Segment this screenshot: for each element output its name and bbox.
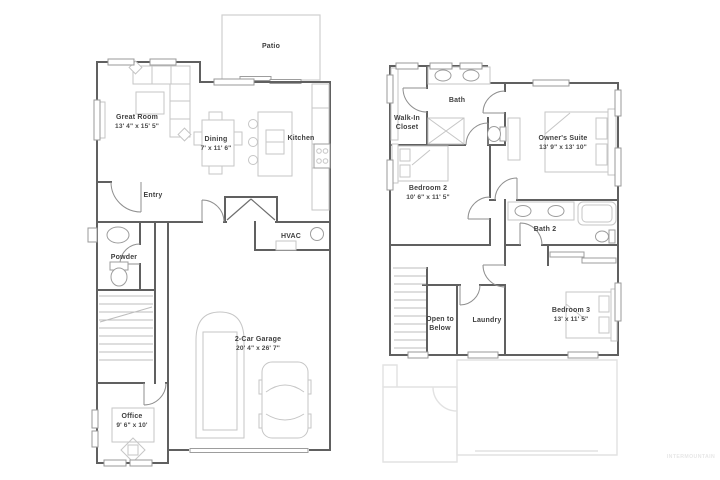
kitchen-island: [258, 112, 292, 176]
floor-plan-image: Patio: [0, 0, 720, 480]
water-heater: [311, 228, 324, 241]
open-to-below-label-line2: Below: [429, 325, 451, 332]
sofa: [170, 84, 190, 137]
bar-stool: [249, 120, 258, 129]
sink: [515, 206, 531, 217]
dining-chair: [209, 112, 222, 120]
patio-label: Patio: [262, 43, 280, 50]
closet-slider: [550, 252, 584, 257]
closet-walls: [225, 197, 277, 222]
bedroom3-door: [483, 265, 505, 287]
window: [615, 283, 621, 321]
window: [92, 410, 98, 428]
bath-label: Bath: [449, 97, 465, 104]
first-floor-plan: Patio: [88, 15, 330, 466]
window: [150, 59, 176, 65]
pillow: [596, 118, 607, 139]
walk-in-closet-label-line2: Closet: [396, 124, 419, 131]
toilet-room-door: [483, 91, 505, 113]
dresser: [508, 118, 520, 160]
window: [430, 63, 452, 69]
bedroom3-furniture: [550, 252, 617, 341]
window: [468, 352, 498, 358]
sink: [435, 70, 451, 81]
window: [568, 352, 598, 358]
office-label: Office: [121, 413, 142, 420]
ghost-door-arc: [433, 387, 457, 411]
toilet-bowl: [488, 127, 501, 142]
garage-dims: 20' 4" x 26' 7": [236, 345, 280, 352]
owners-suite-dims: 13' 9" x 13' 10": [539, 144, 587, 151]
garage-vehicles: [196, 312, 311, 438]
pillow: [599, 317, 609, 333]
bedroom2-label: Bedroom 2: [409, 185, 447, 192]
pillow: [599, 296, 609, 312]
bath-door: [466, 123, 488, 145]
bedroom2-furniture: [392, 144, 448, 183]
window: [387, 75, 393, 103]
dining-chair: [234, 132, 242, 145]
powder-sink: [107, 227, 129, 243]
dining-label: Dining: [205, 136, 228, 143]
toilet-bowl: [596, 231, 609, 242]
window: [615, 90, 621, 116]
dining-chair: [194, 132, 202, 145]
toilet-bowl: [111, 268, 127, 286]
staircase-floor2: [393, 268, 427, 348]
office-chair: [128, 445, 138, 455]
bar-stool: [249, 156, 258, 165]
vehicle-outline: [203, 332, 237, 430]
front-door: [111, 182, 141, 212]
window: [460, 63, 482, 69]
garage-label: 2-Car Garage: [235, 336, 281, 343]
open-to-below-label-line1: Open to: [426, 316, 454, 323]
closet-double-doors: [227, 199, 275, 220]
car-details: [259, 380, 311, 428]
toilet-tank: [609, 230, 615, 243]
dining-table: [202, 120, 234, 166]
garage-overhead-door: [190, 449, 308, 453]
walk-in-closet-label-line1: Walk-In: [394, 115, 420, 122]
bath-fixtures: [391, 67, 506, 144]
staircase-floor1: [99, 296, 153, 360]
window: [92, 431, 98, 447]
owners-suite-furniture: [508, 109, 616, 175]
dining-chair: [209, 166, 222, 174]
window: [94, 100, 100, 140]
hvac-label: HVAC: [281, 233, 301, 240]
bedroom2-dims: 10' 6" x 11' 5": [406, 194, 450, 201]
bedroom3-dims: 13' x 11' 5": [554, 316, 589, 323]
second-floor-plan: Bath Walk-In Closet Owner's Suite 13' 9"…: [383, 63, 621, 462]
dining-furniture: [194, 112, 242, 174]
patio: Patio: [222, 15, 320, 84]
bedroom2-door: [468, 197, 490, 219]
garage-door-interior: [202, 200, 224, 222]
sink: [463, 70, 479, 81]
office-door: [144, 383, 166, 405]
window: [88, 228, 97, 242]
owners-suite-door: [495, 178, 517, 200]
bath2-label: Bath 2: [534, 226, 557, 233]
ghost-office: [383, 387, 457, 462]
stair-treads: [99, 296, 153, 360]
floor-plan-svg: Patio: [0, 0, 720, 480]
window: [108, 59, 134, 65]
great-room-label: Great Room: [116, 114, 158, 121]
window: [396, 63, 418, 69]
bath2-fixtures: [508, 202, 616, 243]
kitchen-label: Kitchen: [287, 135, 314, 142]
coffee-table: [136, 92, 164, 114]
window: [387, 160, 393, 190]
sink: [548, 206, 564, 217]
range: [314, 144, 330, 168]
bedroom3-label: Bedroom 3: [552, 307, 590, 314]
dining-dims: 7' x 11' 6": [201, 145, 232, 152]
ghost-garage: [457, 360, 617, 455]
entry-label: Entry: [144, 192, 163, 199]
pillow: [596, 144, 607, 165]
laundry-door: [460, 285, 480, 305]
window: [408, 352, 428, 358]
window: [615, 148, 621, 186]
stair-wall: [140, 222, 155, 383]
office-dims: 9' 6" x 10': [116, 422, 148, 429]
ghost-stair-stub: [383, 365, 397, 387]
great-room-dims: 13' 4" x 15' 5": [115, 123, 159, 130]
powder-label: Powder: [111, 254, 138, 261]
floor1-doors: [111, 182, 275, 405]
closet-slider: [582, 258, 616, 263]
sofa: [133, 66, 190, 84]
first-floor-ghost-outline: [383, 360, 617, 462]
hvac-unit: [276, 241, 296, 250]
pillow: [400, 165, 410, 177]
kitchen-fixtures: [249, 84, 331, 210]
shower-x: [428, 118, 464, 144]
stair-laundry-walls: [423, 268, 505, 355]
owners-suite-label: Owner's Suite: [539, 135, 588, 142]
pillow: [400, 149, 410, 161]
watermark: INTERMOUNTAIN: [667, 454, 715, 460]
window: [104, 460, 126, 466]
bathtub-inner: [582, 205, 612, 222]
window: [214, 79, 254, 85]
window: [130, 460, 152, 466]
walk-in-closet-door: [403, 88, 427, 112]
window: [533, 80, 569, 86]
laundry-label: Laundry: [472, 317, 501, 324]
bar-stool: [249, 138, 258, 147]
stair-treads: [393, 268, 427, 348]
car-outline: [262, 362, 308, 438]
